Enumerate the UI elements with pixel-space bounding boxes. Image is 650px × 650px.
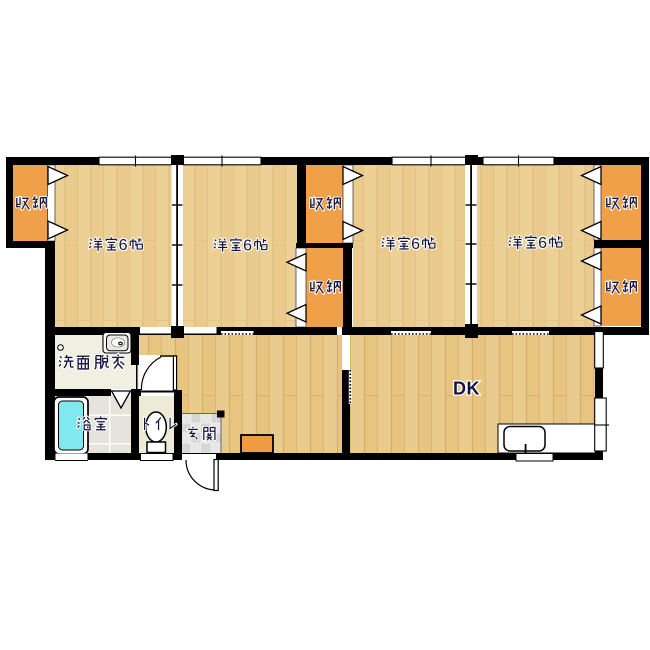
svg-text:6: 6	[119, 237, 128, 254]
svg-text:6: 6	[243, 238, 252, 255]
svg-text:DK: DK	[453, 379, 480, 399]
svg-text:6: 6	[411, 236, 420, 253]
svg-text:6: 6	[538, 235, 547, 252]
